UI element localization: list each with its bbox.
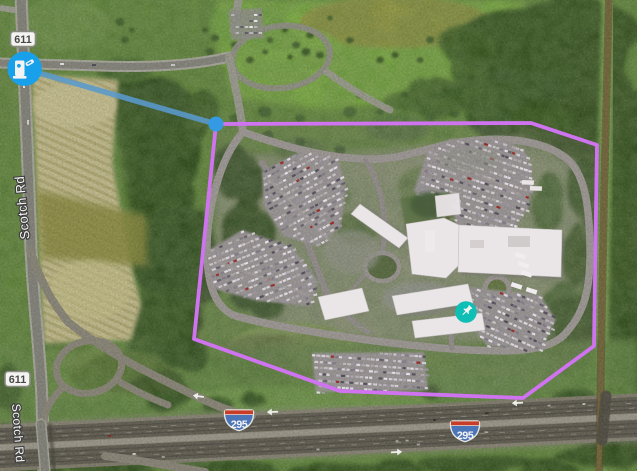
svg-text:611: 611 xyxy=(9,374,26,386)
svg-text:611: 611 xyxy=(14,34,31,46)
svg-text:295: 295 xyxy=(231,419,248,431)
svg-text:295: 295 xyxy=(457,430,474,442)
